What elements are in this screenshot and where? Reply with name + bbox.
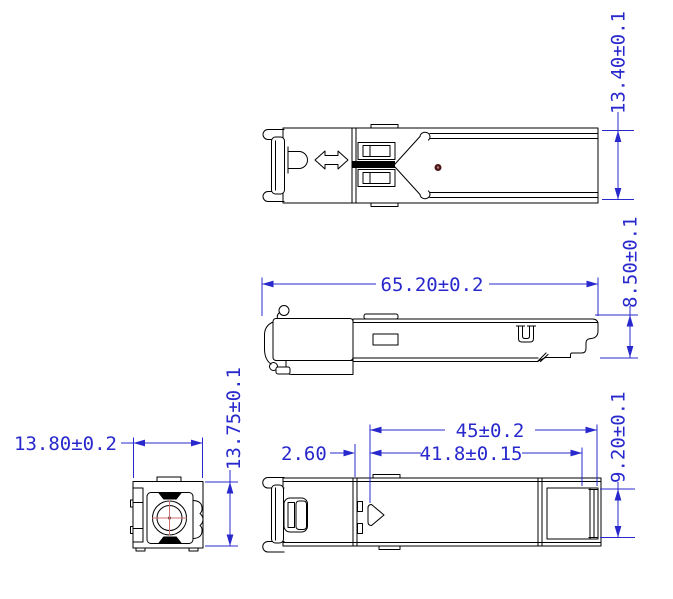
- pcb-edge-connector: [538, 478, 598, 546]
- double-arrow-icon: [315, 151, 348, 169]
- bottom-view: [263, 475, 601, 553]
- dim-connector-length: 41.8±0.15: [370, 443, 582, 486]
- dim-label-overall-length: 65.20±0.2: [381, 274, 484, 296]
- dim-label-connector-length: 41.8±0.15: [420, 443, 523, 465]
- dim-label-connector-height: 9.20±0.1: [608, 391, 630, 483]
- port-divider: [352, 161, 395, 168]
- front-left-plate: [131, 488, 144, 542]
- bail-loop: [279, 306, 289, 316]
- dim-front-width: 13.80±0.2: [14, 433, 203, 478]
- dim-overall-length: 65.20±0.2: [262, 274, 598, 316]
- top-latch-bump: [364, 314, 398, 319]
- dim-label-body-height: 8.50±0.1: [620, 216, 642, 308]
- side-view: [264, 306, 598, 375]
- marking-dot-center: [437, 166, 439, 168]
- front-lower-key: [158, 537, 182, 544]
- dim-label-front-width: 13.80±0.2: [14, 433, 117, 455]
- dim-label-edge-offset: 2.60: [281, 443, 327, 465]
- dim-edge-offset: 2.60: [281, 443, 355, 477]
- front-view: [131, 477, 204, 551]
- dim-label-front-height: 13.75±0.1: [223, 367, 245, 470]
- front-top-tab: [157, 477, 181, 482]
- bottom-edge-tab: [371, 203, 398, 207]
- orientation-marker: [368, 505, 384, 526]
- top-view: [263, 125, 598, 207]
- drawing-canvas: 13.40±0.1 65.20±0.2 8: [0, 0, 673, 599]
- lc-port-upper: [358, 143, 395, 160]
- dim-label-overall-height: 13.40±0.1: [608, 11, 630, 114]
- dim-front-height: 13.75±0.1: [205, 367, 245, 546]
- bail-latch-top-view: [263, 130, 285, 202]
- bail-wire: [264, 322, 273, 364]
- dim-body-height: 8.50±0.1: [595, 216, 642, 358]
- side-spring: [194, 501, 204, 539]
- top-edge-tab: [371, 125, 398, 129]
- latch-tab: [288, 152, 308, 169]
- latch-block: [284, 498, 308, 532]
- bail-latch-bottom-view: [263, 478, 284, 553]
- dim-overall-height: 13.40±0.1: [602, 11, 634, 199]
- dim-label-pcb-length: 45±0.2: [456, 420, 525, 442]
- front-upper-key: [158, 493, 182, 500]
- side-body: [353, 319, 598, 362]
- lc-port-lower: [358, 170, 395, 187]
- drawing-svg: 13.40±0.1 65.20±0.2 8: [0, 0, 673, 599]
- dim-connector-height: 9.20±0.1: [600, 391, 635, 537]
